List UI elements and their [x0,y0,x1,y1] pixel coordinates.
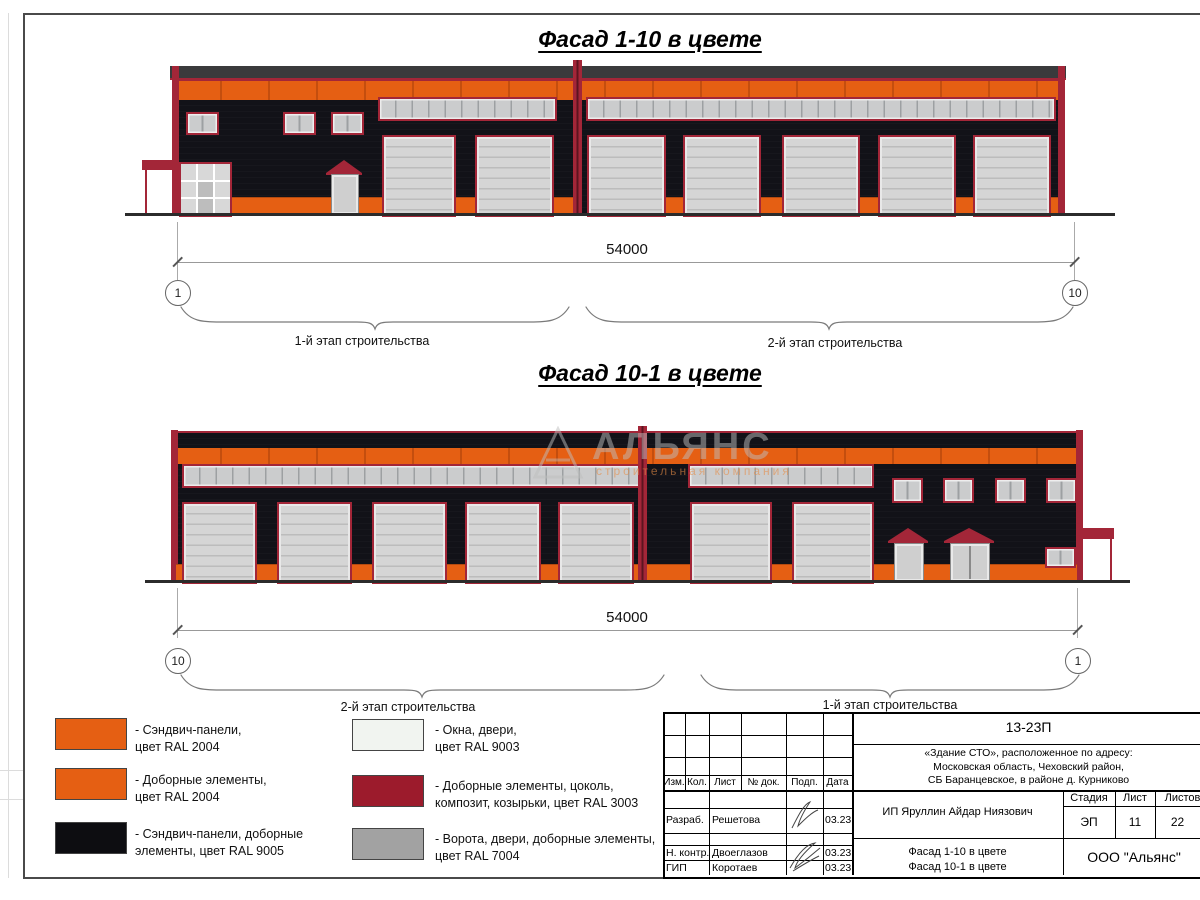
axis-marker: 10 [165,648,191,674]
tb-stage-label: Стадия [1063,792,1115,804]
legend-label: - Сэндвич-панели, цвет RAL 2004 [135,722,335,756]
dimension-line [177,630,1078,631]
extension-line [1074,222,1075,280]
alliance-logo-watermark [532,426,584,480]
legend-label: - Окна, двери, цвет RAL 9003 [435,722,665,756]
legend-swatch [352,828,424,860]
tb-name: Решетова [712,814,760,826]
tb-header-izm: Изм. [663,777,685,788]
tb-sheet-title: Фасад 1-10 в цвете Фасад 10-1 в цвете [852,845,1063,875]
door-gable-canopy [326,160,362,173]
tb-name: Коротаев [712,862,757,874]
tb-date: 03.23 [825,814,851,826]
plinth [227,197,331,214]
tb-role: ГИП [666,862,687,874]
tb-doc-number: 13-23П [852,719,1200,735]
tb-listov-value: 22 [1155,815,1200,829]
facade1-title: Фасад 1-10 в цвете [375,26,925,53]
gate-door [690,502,772,584]
tb-company: ООО "Альянс" [1063,849,1200,865]
titleblock-line [663,757,852,758]
window [283,112,316,135]
plinth [647,564,690,581]
facade2-left-column [171,430,178,580]
window [1045,547,1076,568]
titleblock-line [852,744,1200,745]
tb-date: 03.23 [825,862,851,874]
tb-address: «Здание СТО», расположенное по адресу: М… [857,747,1200,788]
dimension-value: 54000 [427,241,827,258]
tb-header-podp: Подп. [786,777,823,788]
canopy-post [1110,539,1112,581]
legend-swatch [55,822,127,854]
margin-tick [0,799,23,800]
glazed-entrance [179,162,232,217]
titleblock-line [1063,806,1200,807]
gate-door [465,502,541,584]
gate-door [372,502,447,584]
titleblock-line [663,845,852,846]
stage-brace [180,306,570,332]
stage-label: 1-й этап строительства [162,334,562,348]
watermark-subtitle: строительная компания [596,464,792,478]
gate-door [587,135,666,217]
stage-divider [573,60,582,213]
window [331,112,364,135]
tb-role: Н. контр. [666,847,709,859]
window [892,478,923,503]
stage-brace [180,674,665,700]
tb-header-kol: Кол. [685,777,709,788]
tb-header-data: Дата [823,777,852,788]
ground-line [145,580,1130,583]
titleblock-line [663,775,852,776]
titleblock-line [852,838,1200,839]
tb-stage-value: ЭП [1063,815,1115,829]
tb-role: Разраб. [666,814,704,826]
stage-brace [700,674,1080,700]
gate-door [782,135,860,217]
gate-door [878,135,956,217]
tb-name: Двоеглазов [712,847,768,859]
titleblock-line [663,735,852,736]
plinth [357,197,382,214]
axis-marker: 10 [1062,280,1088,306]
tb-date: 03.23 [825,847,851,859]
facade1-right-column [1058,66,1065,213]
ribbon-window [586,97,1056,121]
sheet-frame-left [23,13,25,879]
entry-door [894,543,924,582]
window [1046,478,1077,503]
facade2-title: Фасад 10-1 в цвете [375,360,925,387]
gate-door [182,502,257,584]
facade1-left-column [172,66,179,213]
titleblock-line [663,808,852,809]
stage-label: 2-й этап строительства [208,700,608,714]
titleblock-line [823,712,824,875]
ground-line [125,213,1115,216]
stage-label: 1-й этап строительства [690,698,1090,712]
double-entry-door [950,543,990,582]
window [995,478,1026,503]
sheet-margin-line [8,13,9,878]
gate-door [683,135,761,217]
legend-swatch [352,719,424,751]
watermark-name: АЛЬЯНС [592,426,773,469]
axis-marker: 1 [165,280,191,306]
legend-swatch [55,718,127,750]
facade2-right-column [1076,430,1083,580]
door-gable-canopy [888,528,928,541]
stage-label: 2-й этап строительства [630,336,1040,350]
legend-label: - Ворота, двери, доборные элементы, цвет… [435,831,685,865]
entry-door [331,174,359,215]
dimension-line [177,262,1075,263]
gate-door [792,502,874,584]
signature [787,838,823,874]
tb-header-doc: № док. [741,777,786,788]
legend-label: - Доборные элементы, цвет RAL 2004 [135,772,335,806]
gate-door [558,502,634,584]
drawing-sheet: Фасад 1-10 в цвете 54000 1 10 [0,0,1200,900]
titleblock-line [663,860,852,861]
ribbon-window [378,97,557,121]
titleblock-line [663,833,852,834]
facade1-roof-band [170,66,1066,80]
gate-door [277,502,352,584]
dimension-value: 54000 [427,609,827,626]
gate-door [382,135,456,217]
tb-client: ИП Яруллин Айдар Ниязович [852,806,1063,818]
axis-marker: 1 [1065,648,1091,674]
window [943,478,974,503]
stage-brace [585,306,1074,332]
door-gable-canopy [944,528,994,541]
entrance-canopy [142,160,179,170]
extension-line [177,222,178,280]
signature [788,798,822,834]
tb-listov-label: Листов [1155,792,1200,804]
tb-header-list: Лист [709,777,741,788]
legend-label: - Доборные элементы, цоколь, композит, к… [435,778,675,812]
sheet-frame-top [23,13,1200,15]
gate-door [475,135,554,217]
legend-swatch [352,775,424,807]
tb-list-label: Лист [1115,792,1155,804]
legend-swatch [55,768,127,800]
tb-list-value: 11 [1115,815,1155,829]
margin-tick [0,770,23,771]
legend-label: - Сэндвич-панели, доборные элементы, цве… [135,826,355,860]
gate-door [973,135,1051,217]
canopy-post [145,170,147,213]
entrance-canopy [1083,528,1114,539]
window [186,112,219,135]
